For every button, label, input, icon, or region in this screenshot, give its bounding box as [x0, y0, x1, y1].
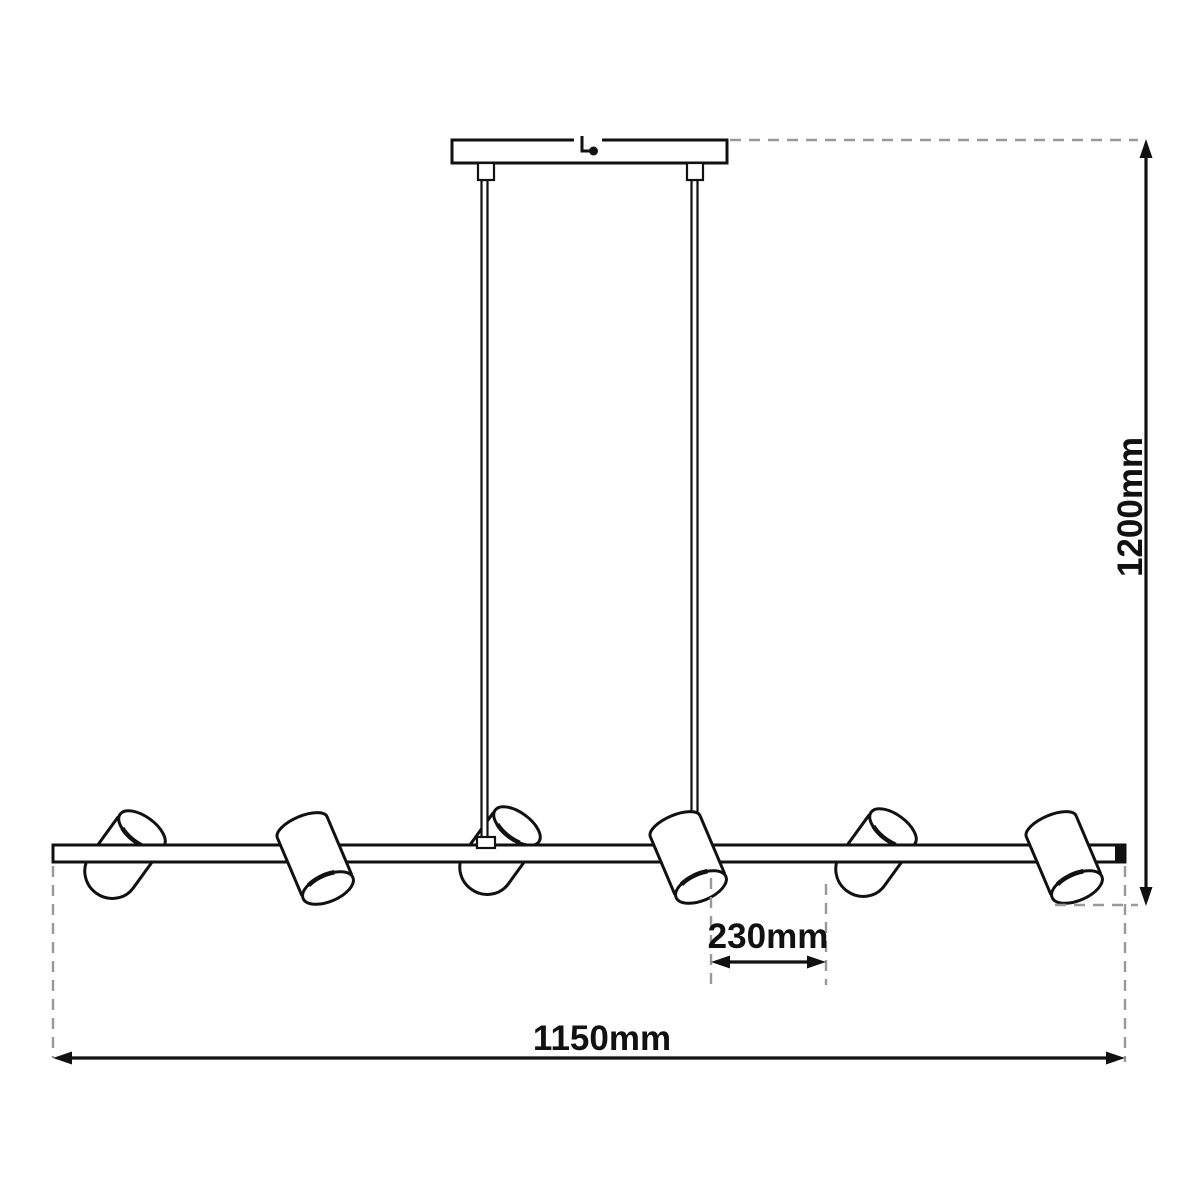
rod-tube: [482, 180, 488, 844]
spotlight-4: [646, 806, 731, 910]
suspension-rod-right: [687, 163, 703, 848]
lamp-bar: [53, 845, 1125, 862]
dimension-drawing: 1200mm 230mm 1150mm: [0, 0, 1200, 1200]
bar-body: [53, 845, 1125, 862]
spotlight-2: [273, 807, 358, 911]
arrowhead-left: [711, 956, 730, 969]
dimension-height: 1200mm: [730, 139, 1153, 906]
dimension-length: 1150mm: [53, 866, 1125, 1065]
canopy-border-gap: [574, 135, 602, 144]
arrowhead-right: [807, 956, 826, 969]
rod-top-connector: [687, 163, 703, 180]
pendant-lamp-diagram: 1200mm 230mm 1150mm: [0, 0, 1200, 1200]
rod-bar-connector: [477, 837, 495, 848]
length-label: 1150mm: [533, 1019, 671, 1058]
dimension-spacing: 230mm: [708, 878, 829, 985]
spotlight-6: [1022, 806, 1107, 910]
ceiling-canopy: [452, 135, 727, 163]
cable-entry-dot: [589, 147, 598, 156]
arrowhead-down: [1140, 887, 1153, 906]
rod-tube: [692, 180, 698, 848]
arrowhead-up: [1140, 139, 1153, 158]
bar-end-cap: [1115, 845, 1125, 862]
arrowhead-left: [53, 1052, 72, 1065]
arrowhead-right: [1106, 1052, 1125, 1065]
height-label: 1200mm: [1111, 437, 1150, 577]
suspension-rod-left: [477, 163, 495, 848]
rod-top-connector: [478, 163, 494, 180]
spacing-label: 230mm: [708, 917, 829, 956]
